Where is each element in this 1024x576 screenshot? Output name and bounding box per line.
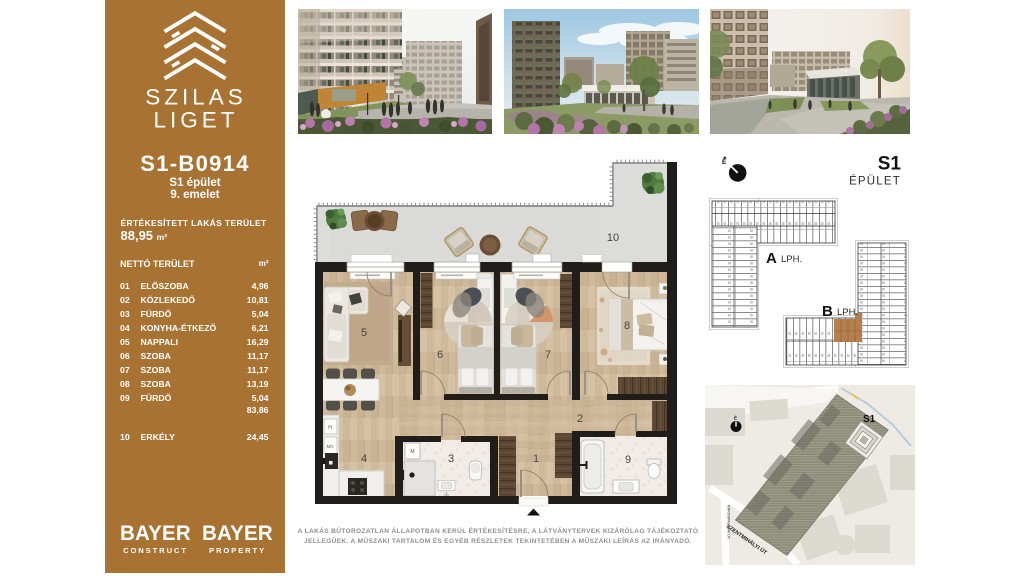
svg-text:1: 1	[533, 453, 539, 465]
svg-text:S1: S1	[863, 414, 876, 425]
svg-text:B: B	[822, 303, 833, 320]
svg-text:2: 2	[577, 413, 583, 425]
svg-text:S1: S1	[878, 154, 902, 175]
svg-text:ÉPÜLET: ÉPÜLET	[849, 175, 901, 188]
svg-text:8: 8	[624, 320, 630, 332]
svg-text:6: 6	[437, 349, 443, 361]
svg-text:LPH.: LPH.	[781, 254, 802, 265]
svg-text:H: H	[328, 425, 332, 431]
svg-text:A: A	[766, 250, 777, 267]
svg-text:10: 10	[607, 232, 619, 244]
svg-text:LIGET: LIGET	[153, 108, 238, 133]
svg-text:3: 3	[448, 453, 454, 465]
svg-text:SZILAS: SZILAS	[145, 85, 247, 110]
svg-text:9: 9	[625, 454, 631, 466]
svg-text:RÁKOSPALOTAI ÚT: RÁKOSPALOTAI ÚT	[727, 505, 732, 540]
svg-text:M: M	[410, 449, 414, 455]
svg-text:MO: MO	[327, 444, 334, 449]
svg-text:7: 7	[545, 349, 551, 361]
svg-text:É: É	[734, 414, 737, 421]
svg-text:4: 4	[361, 453, 367, 465]
svg-text:LPH.: LPH.	[837, 307, 858, 318]
svg-text:5: 5	[361, 327, 367, 339]
